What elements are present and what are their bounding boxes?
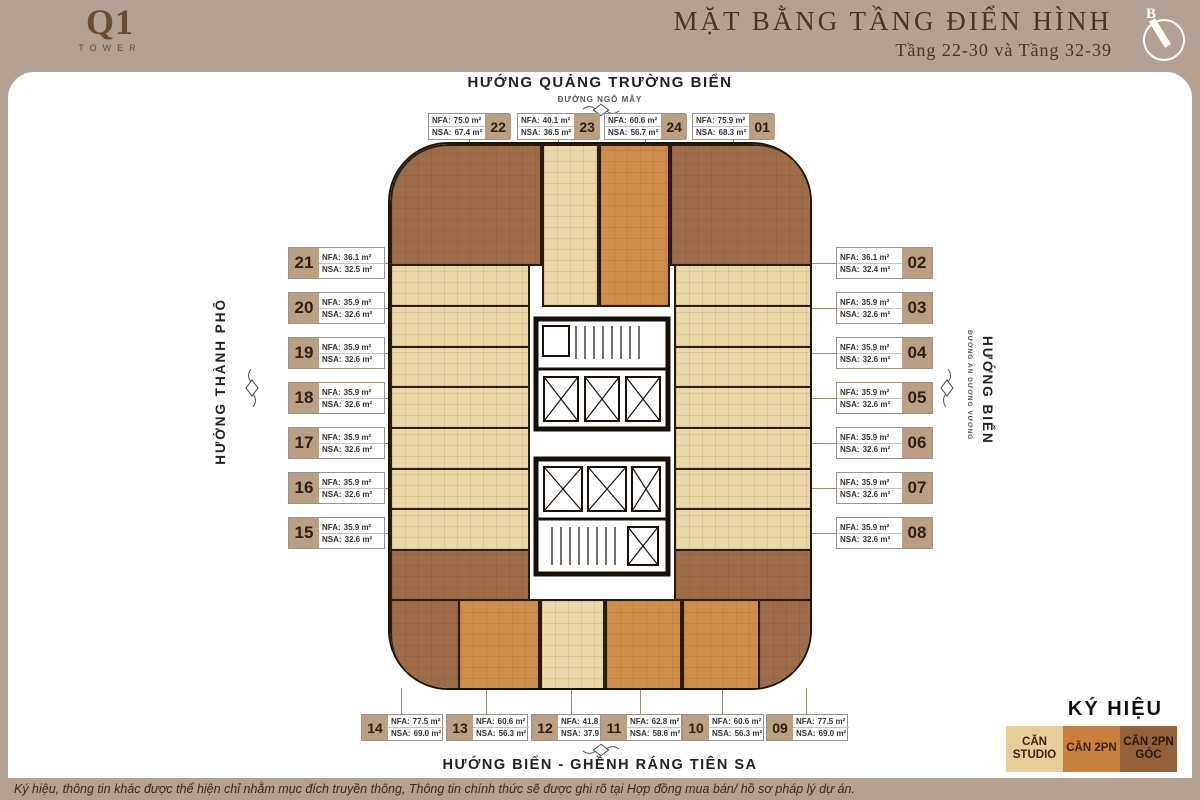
nfa-key: NFA: bbox=[696, 116, 715, 125]
nsa-key: NSA: bbox=[322, 445, 342, 454]
unit-20-label: 20 NFA:35.9 m²NSA:32.6 m² bbox=[288, 292, 385, 324]
unit-04-label: 04 NFA:35.9 m²NSA:32.6 m² bbox=[836, 337, 933, 369]
nfa-value: 35.9 m² bbox=[344, 298, 372, 307]
unit-10-label: 10 NFA:60.6 m²NSA:56.3 m² bbox=[682, 714, 764, 741]
nfa-key: NFA: bbox=[521, 116, 540, 125]
unit-number: 02 bbox=[902, 248, 932, 278]
unit-19-area bbox=[390, 346, 530, 388]
nsa-key: NSA: bbox=[712, 729, 732, 738]
unit-number: 19 bbox=[289, 338, 319, 368]
nsa-value: 56.3 m² bbox=[499, 729, 527, 738]
nfa-value: 75.0 m² bbox=[454, 116, 482, 125]
nfa-value: 40.1 m² bbox=[543, 116, 571, 125]
unit-13-area bbox=[458, 599, 540, 690]
nsa-value: 69.0 m² bbox=[414, 729, 442, 738]
unit-17-area bbox=[390, 427, 530, 470]
unit-20-area bbox=[390, 305, 530, 348]
disclaimer-text: Ký hiệu, thông tin khác được thể hiện ch… bbox=[0, 782, 855, 796]
nfa-value: 35.9 m² bbox=[862, 433, 890, 442]
direction-arrow-left-icon bbox=[243, 368, 261, 413]
nsa-key: NSA: bbox=[322, 355, 342, 364]
nsa-key: NSA: bbox=[796, 729, 816, 738]
unit-07-label: 07 NFA:35.9 m²NSA:32.6 m² bbox=[836, 472, 933, 504]
nsa-value: 32.6 m² bbox=[345, 400, 373, 409]
nfa-value: 77.5 m² bbox=[413, 717, 441, 726]
unit-number: 23 bbox=[574, 114, 600, 139]
nfa-key: NFA: bbox=[840, 253, 859, 262]
logo-sub-text: TOWER bbox=[50, 43, 170, 53]
page-title: MẶT BẰNG TẦNG ĐIỂN HÌNH bbox=[674, 6, 1112, 37]
unit-23-label: 23 NFA:40.1 m²NSA:36.5 m² bbox=[517, 113, 599, 140]
nfa-key: NFA: bbox=[322, 298, 341, 307]
nfa-key: NFA: bbox=[840, 343, 859, 352]
nsa-key: NSA: bbox=[608, 128, 628, 137]
logo-main-text: Q1 bbox=[50, 2, 170, 42]
nfa-key: NFA: bbox=[840, 523, 859, 532]
leader-line bbox=[810, 488, 836, 489]
leader-line bbox=[810, 533, 836, 534]
nfa-key: NFA: bbox=[608, 116, 627, 125]
page-title-block: MẶT BẰNG TẦNG ĐIỂN HÌNH Tầng 22-30 và Tầ… bbox=[674, 6, 1112, 61]
nfa-value: 35.9 m² bbox=[862, 388, 890, 397]
leader-line bbox=[806, 688, 807, 716]
legend-swatch-studio: CĂN STUDIO bbox=[1006, 726, 1063, 772]
unit-16-label: 16 NFA:35.9 m²NSA:32.6 m² bbox=[288, 472, 385, 504]
unit-11-area bbox=[605, 599, 682, 690]
unit-04-area bbox=[674, 346, 812, 388]
nfa-key: NFA: bbox=[322, 388, 341, 397]
nfa-key: NFA: bbox=[840, 478, 859, 487]
unit-17-label: 17 NFA:35.9 m²NSA:32.6 m² bbox=[288, 427, 385, 459]
nsa-key: NSA: bbox=[561, 729, 581, 738]
nfa-value: 77.5 m² bbox=[818, 717, 846, 726]
nfa-key: NFA: bbox=[840, 388, 859, 397]
nsa-value: 69.0 m² bbox=[819, 729, 847, 738]
unit-08-label: 08 NFA:35.9 m²NSA:32.6 m² bbox=[836, 517, 933, 549]
nsa-value: 36.5 m² bbox=[544, 128, 572, 137]
unit-07-area bbox=[674, 468, 812, 510]
unit-number: 16 bbox=[289, 473, 319, 503]
nsa-value: 32.6 m² bbox=[863, 535, 891, 544]
nfa-key: NFA: bbox=[322, 433, 341, 442]
nfa-value: 35.9 m² bbox=[344, 478, 372, 487]
unit-19-label: 19 NFA:35.9 m²NSA:32.6 m² bbox=[288, 337, 385, 369]
nsa-value: 56.3 m² bbox=[735, 729, 763, 738]
unit-21-area bbox=[390, 264, 530, 307]
nsa-value: 32.6 m² bbox=[345, 310, 373, 319]
nsa-key: NSA: bbox=[840, 400, 860, 409]
nsa-value: 58.6 m² bbox=[653, 729, 681, 738]
direction-left-label: HƯỚNG THÀNH PHỐ bbox=[213, 298, 228, 465]
unit-24-label: 24 NFA:60.6 m²NSA:56.7 m² bbox=[604, 113, 686, 140]
leader-line bbox=[401, 688, 402, 716]
nfa-key: NFA: bbox=[630, 717, 649, 726]
elevator-core bbox=[530, 309, 674, 584]
unit-16-area bbox=[390, 468, 530, 510]
unit-22-label: 22 NFA:75.0 m²NSA:67.4 m² bbox=[428, 113, 510, 140]
unit-13-label: 13 NFA:60.6 m²NSA:56.3 m² bbox=[446, 714, 528, 741]
leader-line bbox=[640, 688, 641, 716]
nsa-value: 32.6 m² bbox=[863, 355, 891, 364]
nfa-value: 35.9 m² bbox=[344, 388, 372, 397]
nfa-value: 60.6 m² bbox=[734, 717, 762, 726]
nfa-key: NFA: bbox=[840, 433, 859, 442]
unit-number: 03 bbox=[902, 293, 932, 323]
unit-03-label: 03 NFA:35.9 m²NSA:32.6 m² bbox=[836, 292, 933, 324]
leader-line bbox=[810, 398, 836, 399]
unit-02-label: 02 NFA:36.1 m²NSA:32.4 m² bbox=[836, 247, 933, 279]
nsa-key: NSA: bbox=[322, 310, 342, 319]
nsa-value: 32.6 m² bbox=[345, 535, 373, 544]
compass-north-icon: B bbox=[1126, 2, 1192, 73]
unit-03-area bbox=[674, 305, 812, 348]
legend-title: KÝ HIỆU bbox=[1068, 698, 1163, 721]
unit-number: 12 bbox=[532, 715, 558, 740]
nfa-value: 35.9 m² bbox=[344, 433, 372, 442]
unit-number: 17 bbox=[289, 428, 319, 458]
nsa-key: NSA: bbox=[840, 265, 860, 274]
nfa-value: 35.9 m² bbox=[344, 523, 372, 532]
nsa-value: 32.5 m² bbox=[345, 265, 373, 274]
street-right-label: ĐƯỜNG AN DƯƠNG VƯƠNG bbox=[966, 330, 973, 440]
nfa-value: 35.9 m² bbox=[862, 343, 890, 352]
unit-number: 10 bbox=[683, 715, 709, 740]
unit-number: 01 bbox=[749, 114, 775, 139]
footer-band: Ký hiệu, thông tin khác được thể hiện ch… bbox=[0, 778, 1200, 800]
nsa-value: 32.6 m² bbox=[863, 490, 891, 499]
unit-24-area bbox=[599, 144, 670, 307]
nfa-key: NFA: bbox=[561, 717, 580, 726]
unit-number: 08 bbox=[902, 518, 932, 548]
legend-swatch-2pn: CĂN 2PN bbox=[1063, 726, 1120, 772]
nfa-value: 35.9 m² bbox=[862, 523, 890, 532]
unit-15-area bbox=[390, 508, 530, 551]
unit-01-label: 01 NFA:75.9 m²NSA:68.3 m² bbox=[692, 113, 774, 140]
unit-12-area bbox=[540, 599, 605, 690]
unit-14-area bbox=[390, 549, 530, 601]
unit-number: 22 bbox=[485, 114, 511, 139]
nsa-key: NSA: bbox=[840, 355, 860, 364]
nfa-key: NFA: bbox=[476, 717, 495, 726]
unit-number: 04 bbox=[902, 338, 932, 368]
direction-right-label: HƯỚNG BIỂN bbox=[980, 336, 995, 445]
unit-22-area bbox=[390, 144, 542, 266]
nsa-value: 32.6 m² bbox=[863, 400, 891, 409]
nsa-key: NSA: bbox=[391, 729, 411, 738]
nfa-key: NFA: bbox=[432, 116, 451, 125]
unit-number: 11 bbox=[601, 715, 627, 740]
nsa-value: 32.6 m² bbox=[863, 310, 891, 319]
nfa-key: NFA: bbox=[322, 523, 341, 532]
nfa-value: 60.6 m² bbox=[630, 116, 658, 125]
unit-number: 14 bbox=[362, 715, 388, 740]
nfa-value: 36.1 m² bbox=[344, 253, 372, 262]
nfa-key: NFA: bbox=[322, 343, 341, 352]
nfa-key: NFA: bbox=[322, 478, 341, 487]
nfa-key: NFA: bbox=[712, 717, 731, 726]
nfa-value: 36.1 m² bbox=[862, 253, 890, 262]
nfa-key: NFA: bbox=[322, 253, 341, 262]
unit-number: 09 bbox=[767, 715, 793, 740]
unit-18-label: 18 NFA:35.9 m²NSA:32.6 m² bbox=[288, 382, 385, 414]
nsa-value: 32.6 m² bbox=[863, 445, 891, 454]
unit-02-area bbox=[674, 264, 812, 307]
unit-number: 21 bbox=[289, 248, 319, 278]
unit-number: 07 bbox=[902, 473, 932, 503]
unit-09-area bbox=[674, 549, 812, 601]
direction-arrow-right-icon bbox=[938, 368, 956, 413]
unit-11-label: 11 NFA:62.8 m²NSA:58.6 m² bbox=[600, 714, 682, 741]
leader-line bbox=[571, 688, 572, 716]
leader-line bbox=[810, 443, 836, 444]
unit-21-label: 21 NFA:36.1 m²NSA:32.5 m² bbox=[288, 247, 385, 279]
nsa-key: NSA: bbox=[322, 535, 342, 544]
leader-line bbox=[810, 263, 836, 264]
unit-05-area bbox=[674, 386, 812, 429]
nsa-value: 32.4 m² bbox=[863, 265, 891, 274]
nsa-key: NSA: bbox=[840, 310, 860, 319]
unit-number: 15 bbox=[289, 518, 319, 548]
nfa-key: NFA: bbox=[840, 298, 859, 307]
header-band: Q1 TOWER MẶT BẰNG TẦNG ĐIỂN HÌNH Tầng 22… bbox=[0, 0, 1200, 72]
nsa-key: NSA: bbox=[696, 128, 716, 137]
nsa-key: NSA: bbox=[840, 535, 860, 544]
nsa-value: 32.6 m² bbox=[345, 490, 373, 499]
unit-18-area bbox=[390, 386, 530, 429]
unit-06-area bbox=[674, 427, 812, 470]
nsa-key: NSA: bbox=[476, 729, 496, 738]
nsa-value: 32.6 m² bbox=[345, 355, 373, 364]
nfa-key: NFA: bbox=[796, 717, 815, 726]
nfa-key: NFA: bbox=[391, 717, 410, 726]
leader-line bbox=[810, 353, 836, 354]
unit-06-label: 06 NFA:35.9 m²NSA:32.6 m² bbox=[836, 427, 933, 459]
floor-plan bbox=[388, 142, 812, 690]
unit-08-area bbox=[674, 508, 812, 551]
nfa-value: 75.9 m² bbox=[718, 116, 746, 125]
unit-09-label: 09 NFA:77.5 m²NSA:69.0 m² bbox=[766, 714, 848, 741]
unit-05-label: 05 NFA:35.9 m²NSA:32.6 m² bbox=[836, 382, 933, 414]
nfa-value: 35.9 m² bbox=[344, 343, 372, 352]
unit-14-label: 14 NFA:77.5 m²NSA:69.0 m² bbox=[361, 714, 443, 741]
nsa-key: NSA: bbox=[322, 490, 342, 499]
nsa-key: NSA: bbox=[322, 265, 342, 274]
unit-number: 05 bbox=[902, 383, 932, 413]
legend: CĂN STUDIO CĂN 2PN CĂN 2PN GÓC bbox=[1006, 726, 1177, 772]
nsa-key: NSA: bbox=[521, 128, 541, 137]
nsa-value: 67.4 m² bbox=[455, 128, 483, 137]
unit-01-area bbox=[670, 144, 812, 266]
q1-tower-logo: Q1 TOWER bbox=[50, 2, 170, 53]
unit-number: 20 bbox=[289, 293, 319, 323]
unit-number: 13 bbox=[447, 715, 473, 740]
nsa-value: 56.7 m² bbox=[631, 128, 659, 137]
leader-line bbox=[722, 688, 723, 716]
nsa-key: NSA: bbox=[840, 490, 860, 499]
nfa-value: 35.9 m² bbox=[862, 478, 890, 487]
unit-number: 24 bbox=[661, 114, 687, 139]
unit-number: 06 bbox=[902, 428, 932, 458]
nsa-value: 68.3 m² bbox=[719, 128, 747, 137]
leader-line bbox=[810, 308, 836, 309]
unit-number: 18 bbox=[289, 383, 319, 413]
unit-15-label: 15 NFA:35.9 m²NSA:32.6 m² bbox=[288, 517, 385, 549]
nsa-key: NSA: bbox=[432, 128, 452, 137]
page-subtitle: Tầng 22-30 và Tầng 32-39 bbox=[674, 40, 1112, 61]
nfa-value: 60.6 m² bbox=[498, 717, 526, 726]
nsa-value: 32.6 m² bbox=[345, 445, 373, 454]
unit-10-area bbox=[682, 599, 760, 690]
leader-line bbox=[486, 688, 487, 716]
nsa-key: NSA: bbox=[840, 445, 860, 454]
direction-top-label: HƯỚNG QUẢNG TRƯỜNG BIỂN bbox=[0, 74, 1200, 91]
nsa-key: NSA: bbox=[322, 400, 342, 409]
nsa-key: NSA: bbox=[630, 729, 650, 738]
unit-23-area bbox=[542, 144, 599, 307]
nfa-value: 62.8 m² bbox=[652, 717, 680, 726]
legend-swatch-2pn-goc: CĂN 2PN GÓC bbox=[1120, 726, 1177, 772]
nfa-value: 35.9 m² bbox=[862, 298, 890, 307]
